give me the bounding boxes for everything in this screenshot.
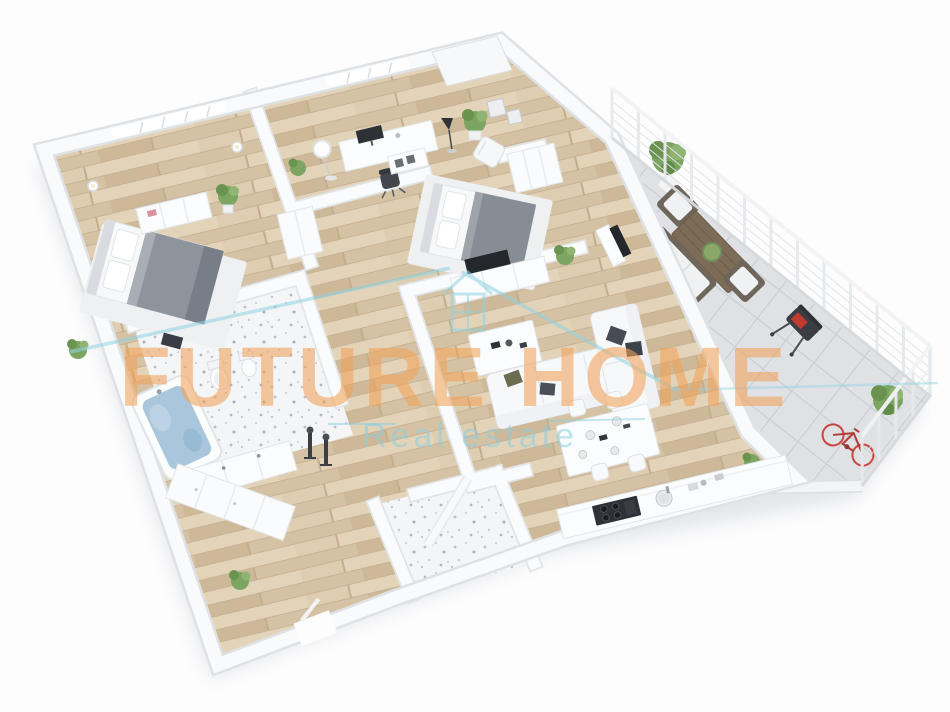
dining-chair bbox=[627, 453, 646, 472]
brand-wordmark: FUTURE HOME bbox=[120, 330, 791, 424]
floor-plan-image: FUTURE HOME Real estate bbox=[0, 0, 950, 712]
wall-lamp bbox=[232, 142, 242, 152]
entrance-opening bbox=[298, 622, 333, 635]
brand-tagline: Real estate bbox=[362, 417, 578, 455]
wall-lamp bbox=[88, 181, 98, 191]
floor-plan-page: FUTURE HOME Real estate bbox=[0, 0, 950, 712]
dining-chair bbox=[590, 462, 609, 481]
